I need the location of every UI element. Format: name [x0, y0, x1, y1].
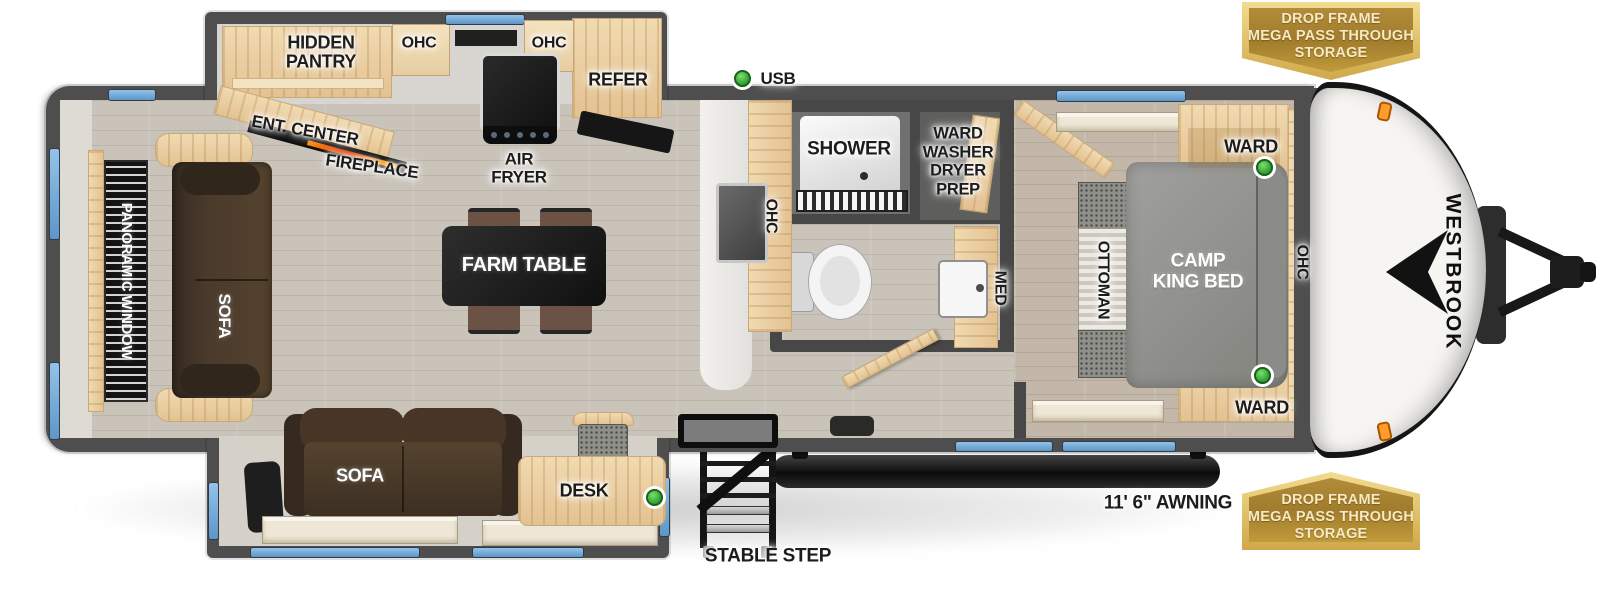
window-frame-board — [88, 150, 104, 412]
shower-drain — [860, 172, 868, 180]
slide-sofa-label: SOFA — [336, 466, 384, 485]
hitch-coupler — [1550, 256, 1584, 288]
badge-text: DROP FRAME MEGA PASS THROUGH STORAGE — [1242, 492, 1420, 542]
sofa-bolster — [180, 163, 260, 195]
awning-label: 11' 6" AWNING — [1104, 494, 1232, 515]
toilet-seat — [820, 256, 860, 306]
usb-label: USB — [761, 70, 796, 88]
bedroom-wall — [1000, 100, 1014, 352]
window-strip — [250, 547, 420, 558]
bed-pillows — [1256, 172, 1286, 378]
badge-text: DROP FRAME MEGA PASS THROUGH STORAGE — [1242, 11, 1420, 61]
shower-label: SHOWER — [807, 140, 891, 161]
drop-frame-badge-top: DROP FRAME MEGA PASS THROUGH STORAGE — [1242, 2, 1420, 80]
stove — [483, 56, 557, 130]
refrigerator — [572, 18, 662, 118]
window-strip — [1056, 90, 1186, 102]
desk-chair — [572, 412, 634, 462]
ohc-left-label: OHC — [402, 34, 437, 51]
awning-tube — [772, 455, 1220, 488]
window-strip — [445, 14, 525, 25]
hidden-pantry-label: HIDDEN PANTRY — [286, 34, 356, 73]
desk-label: DESK — [560, 481, 609, 500]
westbrook-arrow-icon — [1386, 230, 1448, 314]
window-strip — [208, 482, 219, 540]
usb-indicator-icon — [646, 489, 663, 506]
stable-step-label: STABLE STEP — [705, 547, 831, 568]
refer-label: REFER — [588, 70, 648, 89]
ward-washer-label: WARD WASHER DRYER PREP — [923, 125, 994, 200]
panoramic-window-label: PANORAMIC WINDOW — [118, 203, 134, 360]
ottoman-end — [1078, 330, 1128, 378]
window-strip — [472, 547, 584, 558]
window-strip — [49, 148, 60, 240]
floorplan-scene: 11' 6" AWNING STABLE STEP PANORAMIC WIND… — [0, 0, 1600, 615]
sofa-seam — [196, 279, 268, 281]
rear-sofa-label: SOFA — [215, 293, 233, 338]
sofa-bed-slats — [262, 516, 458, 544]
farm-table-label: FARM TABLE — [462, 255, 586, 277]
kitchen-counter-dark — [455, 30, 517, 46]
ottoman-end — [1078, 182, 1128, 230]
bedroom-wall-lower — [1014, 382, 1026, 438]
shower-door — [796, 190, 908, 212]
ward-bottom-label: WARD — [1235, 398, 1289, 417]
usb-indicator-icon — [1254, 367, 1271, 384]
slide-sofa — [284, 408, 522, 520]
bench-board — [1056, 112, 1186, 132]
pantry-shelf-step — [232, 78, 384, 89]
entry-mat — [830, 416, 874, 436]
window-strip — [955, 441, 1053, 452]
window-strip — [108, 89, 156, 101]
sofa-bolster — [180, 364, 260, 396]
air-fryer-label: AIR FRYER — [491, 151, 547, 188]
entry-door — [678, 414, 778, 448]
bench-board — [1032, 400, 1164, 422]
island-ohc-label: OHC — [762, 199, 779, 234]
window-strip — [49, 362, 60, 440]
bed-label: CAMP KING BED — [1153, 251, 1244, 292]
med-label: MED — [991, 271, 1008, 306]
usb-indicator-icon — [1256, 159, 1273, 176]
range-burners — [483, 126, 557, 144]
usb-indicator-icon — [734, 70, 751, 87]
window-strip — [1062, 441, 1176, 452]
ward-top-label: WARD — [1224, 137, 1278, 156]
island-sink — [716, 183, 768, 263]
bedroom-ohc-label: OHC — [1293, 245, 1310, 280]
brand-label: WESTBROOK — [1441, 194, 1464, 351]
ottoman-label: OTTOMAN — [1094, 241, 1111, 320]
ohc-right-label: OHC — [532, 34, 567, 51]
faucet — [976, 284, 984, 292]
tongue-jack — [1580, 262, 1596, 282]
